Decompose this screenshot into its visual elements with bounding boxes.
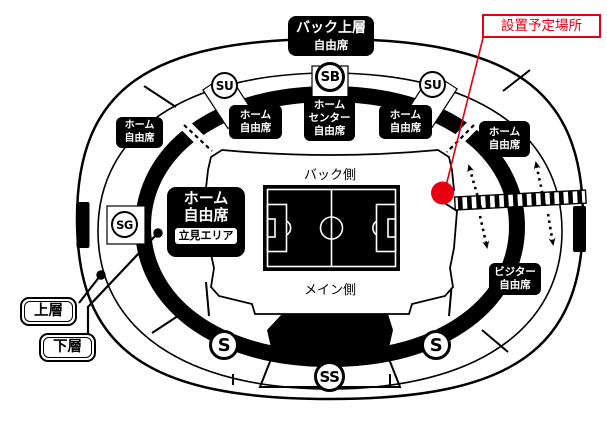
gate-su-left[interactable]: SU <box>211 72 238 99</box>
back-side-label: バック側 <box>290 164 370 183</box>
seat-home-back-right[interactable]: ホーム 自由席 <box>379 105 432 139</box>
gate-ss[interactable]: SS <box>314 361 345 392</box>
placement-dot <box>431 182 454 205</box>
main-side-label: メイン側 <box>290 279 370 298</box>
label-line: 自由席 <box>314 125 346 138</box>
label-line: ホーム <box>125 120 155 132</box>
seat-home-back-center[interactable]: ホーム センター 自由席 <box>304 96 355 141</box>
stadium-seating-map: 設置予定場所 バック上層 自由席 SU SB SU SG S S SS ホーム … <box>0 0 607 432</box>
gate-su-right[interactable]: SU <box>419 71 446 98</box>
tier-lower-label: 下層 <box>39 333 96 362</box>
label-line: センター <box>309 112 351 125</box>
label-line: 下層 <box>43 337 92 358</box>
gate-sg[interactable]: SG <box>111 211 138 238</box>
pitch <box>263 185 400 271</box>
seat-back-upper-line1: バック上層 <box>296 20 366 37</box>
gate-sb[interactable]: SB <box>315 62 345 92</box>
label-line: ホーム <box>314 99 345 112</box>
stadium-drawing <box>0 0 607 432</box>
label-line: 自由席 <box>167 207 245 224</box>
seat-home-far-left[interactable]: ホーム 自由席 <box>116 117 163 148</box>
gate-s-right[interactable]: S <box>421 330 451 360</box>
label-line: 自由席 <box>489 139 521 152</box>
seat-visitor[interactable]: ビジター 自由席 <box>489 263 541 295</box>
label-line: ホーム <box>167 190 245 207</box>
label-line: ビジター <box>494 266 536 279</box>
tier-upper-label: 上層 <box>20 297 77 326</box>
seat-back-upper-line2: 自由席 <box>314 38 349 52</box>
seat-home-far-right[interactable]: ホーム 自由席 <box>479 121 530 157</box>
label-line: 自由席 <box>390 122 422 135</box>
standing-area-label: 立見エリア <box>173 226 239 246</box>
left-edge-block <box>77 202 90 248</box>
placement-note-label: 設置予定場所 <box>482 14 601 38</box>
seat-back-upper[interactable]: バック上層 自由席 <box>288 16 374 56</box>
label-line: ホーム <box>240 109 271 122</box>
seat-home-main[interactable]: ホーム 自由席 立見エリア <box>167 187 245 257</box>
gate-s-left[interactable]: S <box>209 330 239 360</box>
seat-home-back-left[interactable]: ホーム 自由席 <box>229 105 282 139</box>
label-line: 自由席 <box>499 279 531 292</box>
label-line: 自由席 <box>125 133 155 145</box>
label-line: ホーム <box>489 126 520 139</box>
label-line: 自由席 <box>240 122 272 135</box>
right-edge-block <box>573 206 586 252</box>
label-line: ホーム <box>390 109 421 122</box>
label-line: 上層 <box>24 301 73 322</box>
